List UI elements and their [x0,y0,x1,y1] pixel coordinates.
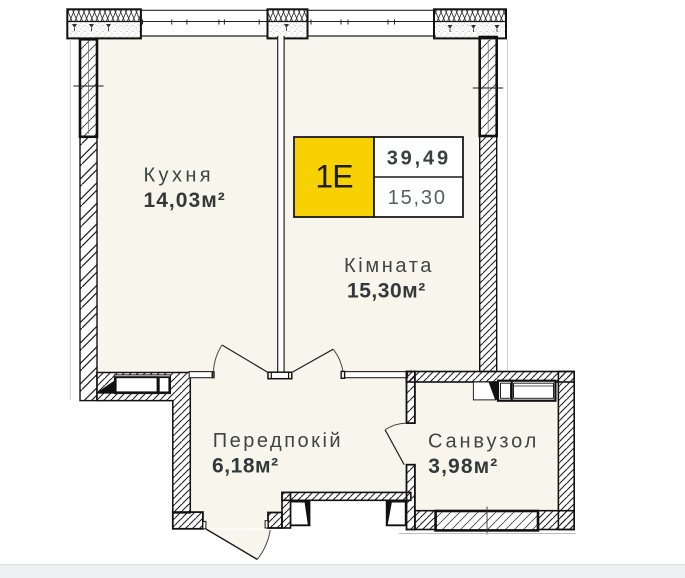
svg-text:Санвузол: Санвузол [428,431,539,453]
svg-text:Передпокій: Передпокій [213,430,343,452]
svg-text:15,30м²: 15,30м² [347,280,426,303]
svg-text:Кухня: Кухня [144,164,215,186]
svg-text:14,03м²: 14,03м² [144,189,226,212]
svg-text:3,98м²: 3,98м² [428,455,498,478]
svg-text:6,18м²: 6,18м² [212,455,279,478]
svg-text:1Е: 1Е [315,159,352,195]
svg-text:Кімната: Кімната [344,255,434,277]
svg-text:15,30: 15,30 [388,187,447,209]
svg-text:39,49: 39,49 [387,148,451,170]
